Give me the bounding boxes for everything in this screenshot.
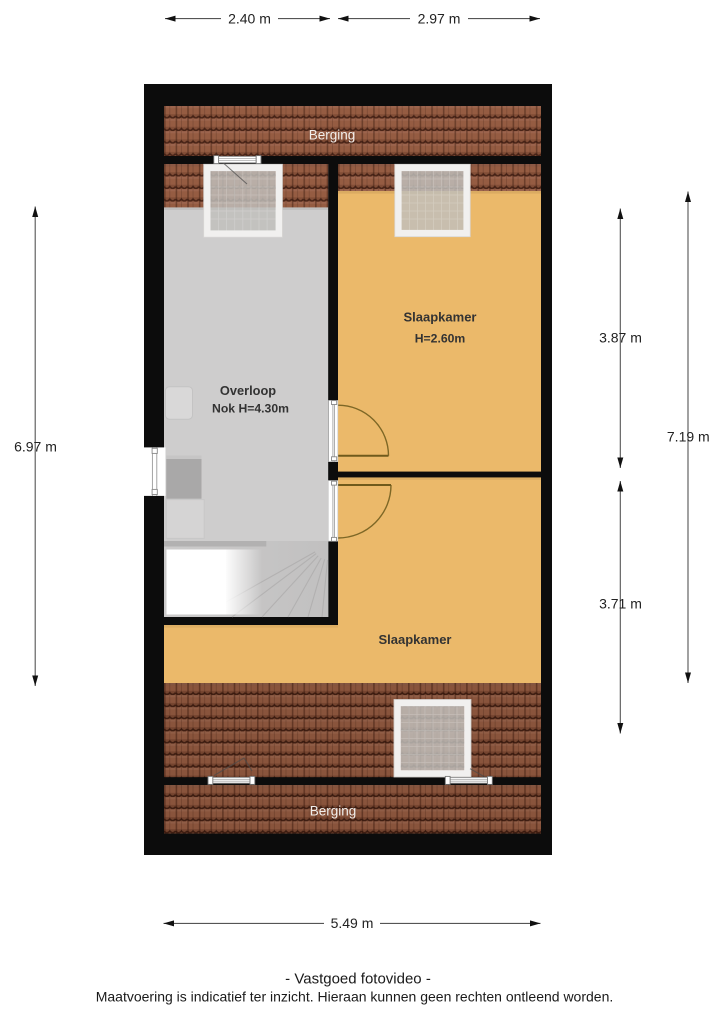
svg-text:H=2.60m: H=2.60m [415, 332, 466, 346]
svg-text:Slaapkamer: Slaapkamer [379, 632, 452, 647]
svg-text:2.97 m: 2.97 m [418, 10, 461, 26]
svg-text:6.97 m: 6.97 m [14, 438, 57, 454]
svg-text:Berging: Berging [309, 128, 356, 143]
svg-text:- Vastgoed fotovideo -: - Vastgoed fotovideo - [285, 971, 431, 988]
svg-text:Berging: Berging [310, 804, 357, 819]
svg-text:3.71 m: 3.71 m [599, 596, 642, 612]
svg-text:7.19 m: 7.19 m [667, 429, 710, 445]
svg-text:2.40 m: 2.40 m [228, 10, 271, 26]
svg-text:Overloop: Overloop [220, 383, 276, 398]
svg-text:3.87 m: 3.87 m [599, 330, 642, 346]
svg-text:5.49 m: 5.49 m [331, 915, 374, 931]
svg-text:Slaapkamer: Slaapkamer [404, 310, 477, 325]
svg-text:Nok H=4.30m: Nok H=4.30m [212, 402, 289, 416]
svg-text:Maatvoering is indicatief ter: Maatvoering is indicatief ter inzicht. H… [96, 989, 614, 1005]
